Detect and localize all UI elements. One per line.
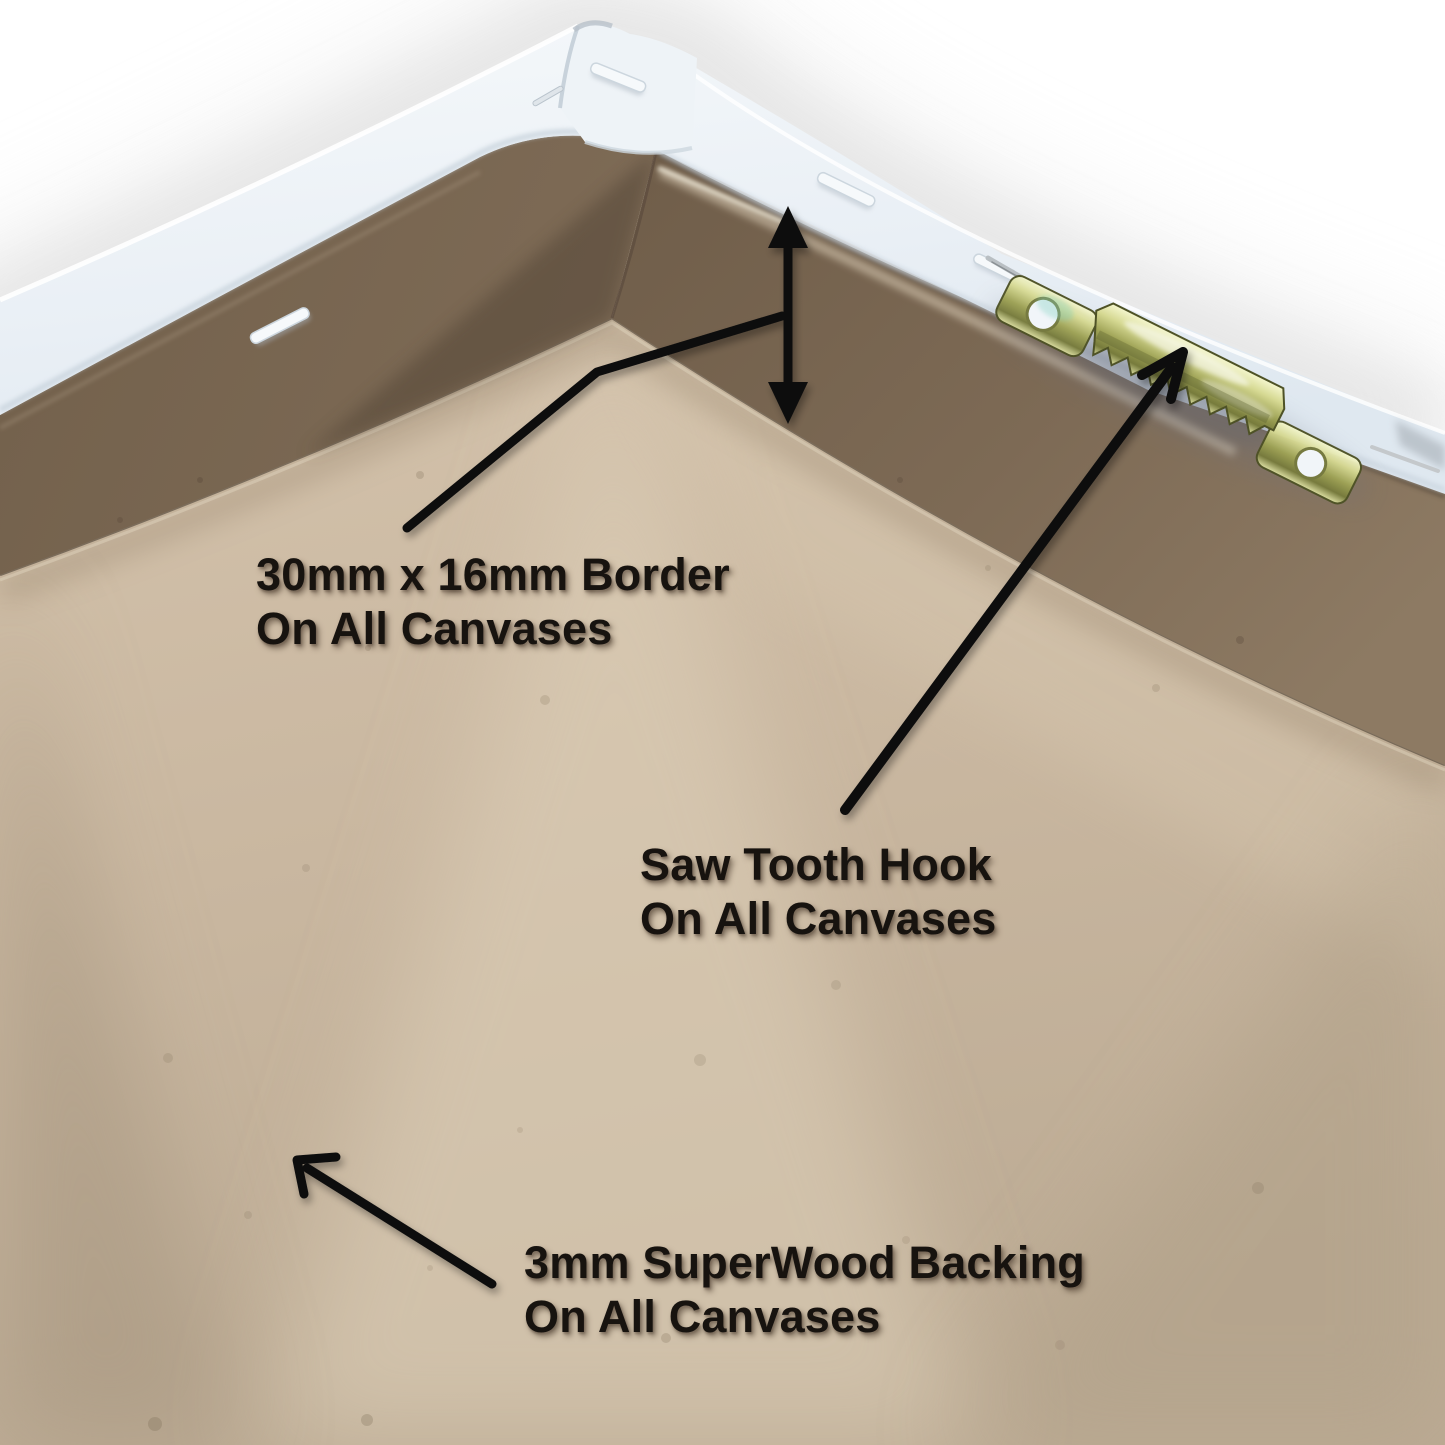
caption-hook-line2: On All Canvases	[640, 892, 996, 946]
caption-backing: 3mm SuperWood Backing On All Canvases	[524, 1236, 1085, 1344]
caption-border: 30mm x 16mm Border On All Canvases	[256, 548, 730, 656]
caption-hook: Saw Tooth Hook On All Canvases	[640, 838, 996, 946]
caption-backing-line2: On All Canvases	[524, 1290, 1085, 1344]
caption-border-line1: 30mm x 16mm Border	[256, 548, 730, 602]
caption-hook-line1: Saw Tooth Hook	[640, 838, 996, 892]
product-photo: 30mm x 16mm Border On All Canvases Saw T…	[0, 0, 1445, 1445]
caption-backing-line1: 3mm SuperWood Backing	[524, 1236, 1085, 1290]
caption-border-line2: On All Canvases	[256, 602, 730, 656]
canvas-back-photo	[0, 0, 1445, 1445]
